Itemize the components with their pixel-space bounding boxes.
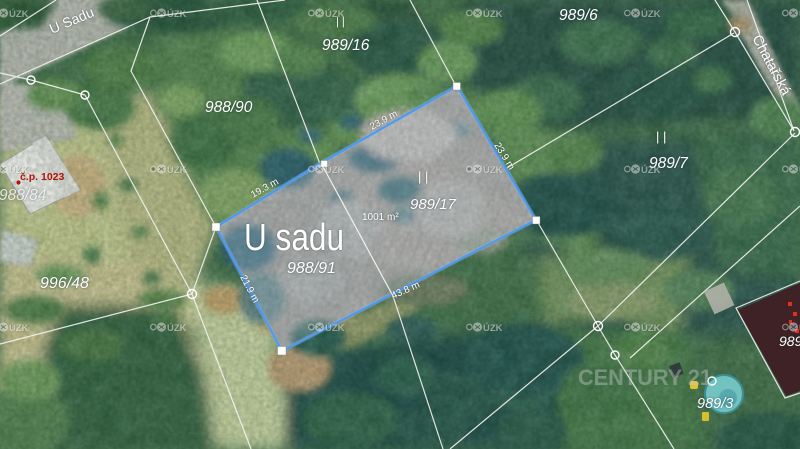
svg-text:988/91: 988/91	[287, 260, 336, 277]
svg-text:U Sadu: U Sadu	[47, 4, 96, 37]
svg-text:| |: | |	[656, 129, 666, 144]
svg-text:1001 m²: 1001 m²	[362, 212, 399, 223]
svg-text:CENTURY 21: CENTURY 21	[578, 365, 712, 390]
svg-text:989/6: 989/6	[559, 7, 598, 24]
svg-text:989/17: 989/17	[410, 196, 457, 213]
svg-text:Chatařská: Chatařská	[748, 32, 794, 99]
svg-text:996/48: 996/48	[40, 275, 89, 292]
svg-text:989/3: 989/3	[697, 396, 733, 412]
svg-text:U sadu: U sadu	[244, 217, 344, 259]
svg-text:| |: | |	[418, 169, 428, 184]
svg-text:21.9 m: 21.9 m	[237, 273, 261, 305]
svg-text:989/16: 989/16	[322, 37, 370, 54]
svg-text:23.9 m: 23.9 m	[368, 108, 400, 132]
svg-text:988/90: 988/90	[205, 99, 253, 116]
svg-text:988/84: 988/84	[0, 187, 47, 204]
svg-text:19.3 m: 19.3 m	[249, 176, 281, 200]
svg-text:989: 989	[779, 333, 800, 349]
svg-text:43.8 m: 43.8 m	[390, 280, 422, 302]
